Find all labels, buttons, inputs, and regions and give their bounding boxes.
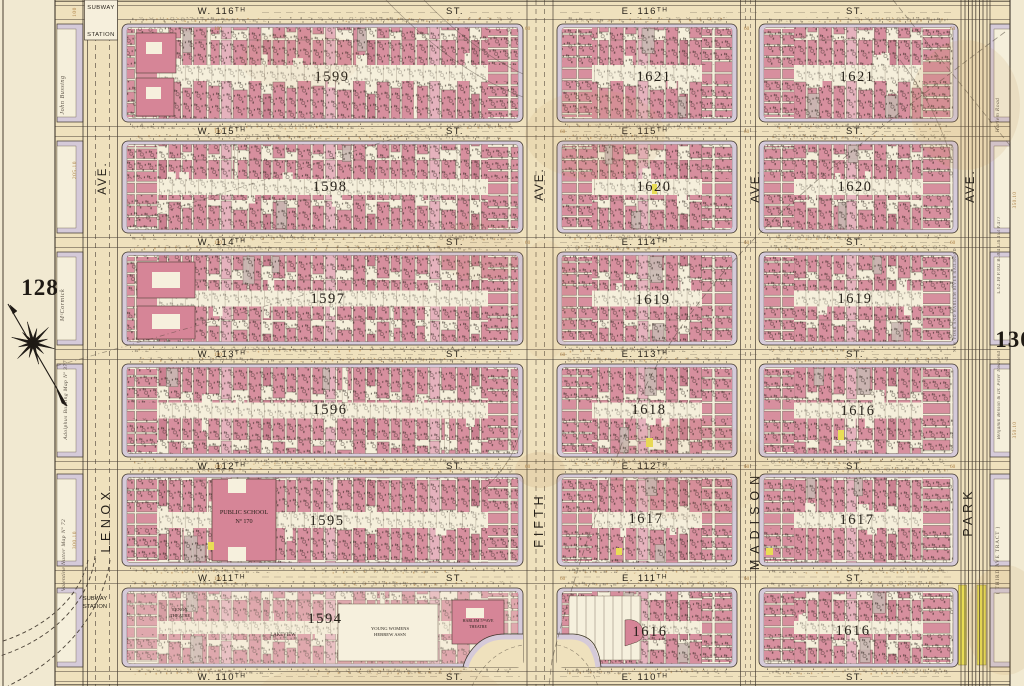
svg-text:SUBWAY: SUBWAY	[87, 5, 114, 11]
svg-text:1619: 1619	[838, 291, 873, 307]
svg-text:60: 60	[950, 464, 956, 470]
svg-text:LAKEVIEW: LAKEVIEW	[270, 633, 296, 638]
svg-text:NEW YORK AND HARLEM RIVER RAIL: NEW YORK AND HARLEM RIVER RAILROAD	[952, 248, 957, 352]
svg-text:100: 100	[214, 352, 222, 358]
svg-text:100: 100	[214, 240, 222, 246]
svg-text:LENOX: LENOX	[172, 607, 188, 612]
svg-text:1616: 1616	[836, 623, 871, 639]
svg-text:60: 60	[744, 240, 750, 246]
svg-text:HEBREW ASSN: HEBREW ASSN	[374, 632, 407, 637]
svg-text:Valentine Nutter Map Nº 72: Valentine Nutter Map Nº 72	[61, 519, 67, 591]
svg-text:60: 60	[560, 576, 566, 582]
svg-text:STATION: STATION	[83, 604, 107, 610]
svg-text:205.10: 205.10	[72, 161, 78, 179]
svg-text:ST.: ST.	[446, 6, 464, 17]
svg-text:ST.: ST.	[446, 573, 464, 584]
svg-text:350.10: 350.10	[1012, 192, 1018, 209]
svg-text:Nº 170: Nº 170	[235, 518, 252, 525]
svg-text:AVE.: AVE.	[965, 169, 977, 202]
svg-text:John Bussing: John Bussing	[59, 75, 66, 114]
svg-text:1621: 1621	[637, 69, 672, 85]
svg-text:ST.: ST.	[846, 461, 864, 472]
svg-text:100: 100	[214, 129, 222, 135]
svg-text:ST.: ST.	[846, 6, 864, 17]
svg-text:Adolphus Bussing Map Nº 377: Adolphus Bussing Map Nº 377	[63, 360, 69, 440]
svg-text:Benjamin Benson & Dr. Peter To: Benjamin Benson & Dr. Peter Townsend	[997, 350, 1002, 439]
svg-text:AVE.: AVE.	[534, 167, 546, 200]
svg-text:1620: 1620	[838, 179, 873, 195]
svg-text:100: 100	[214, 464, 222, 470]
svg-text:HARLEM 5ᵀᴴAVE: HARLEM 5ᵀᴴAVE	[463, 618, 494, 623]
svg-text:60: 60	[950, 26, 956, 32]
svg-text:ST.: ST.	[446, 349, 464, 360]
svg-text:1596: 1596	[313, 402, 348, 418]
svg-text:128: 128	[21, 275, 59, 300]
svg-text:ST.: ST.	[446, 461, 464, 472]
svg-text:SUBWAY: SUBWAY	[83, 596, 108, 602]
svg-text:60: 60	[744, 576, 750, 582]
svg-text:130: 130	[995, 327, 1024, 352]
svg-text:1598: 1598	[313, 179, 348, 195]
svg-text:ST.: ST.	[846, 237, 864, 248]
svg-text:100: 100	[72, 7, 78, 17]
svg-text:60: 60	[525, 240, 531, 246]
svg-text:AVE.: AVE.	[750, 169, 762, 202]
svg-text:MᶜCormick: MᶜCormick	[59, 289, 66, 323]
svg-text:STATION: STATION	[87, 32, 115, 38]
svg-text:1616: 1616	[633, 624, 668, 640]
svg-text:1595: 1595	[310, 513, 345, 529]
svg-text:1597: 1597	[311, 291, 346, 307]
svg-text:AVE.: AVE.	[97, 161, 109, 194]
svg-text:300.10: 300.10	[72, 531, 78, 549]
svg-text:THEATRE: THEATRE	[170, 613, 191, 618]
svg-text:1621: 1621	[840, 69, 875, 85]
svg-text:1618: 1618	[632, 402, 667, 418]
svg-text:1616: 1616	[841, 403, 876, 419]
svg-text:1620: 1620	[637, 179, 672, 195]
svg-text:L.62.10 P.102 B.304 Lib.153: L.62.10 P.102 B.304 Lib.153 P.477	[997, 216, 1002, 294]
svg-text:60: 60	[950, 240, 956, 246]
svg-text:ST.: ST.	[846, 349, 864, 360]
svg-text:60: 60	[744, 129, 750, 135]
svg-text:PUBLIC SCHOOL: PUBLIC SCHOOL	[220, 509, 269, 516]
svg-text:ST.: ST.	[846, 573, 864, 584]
svg-text:ST.: ST.	[846, 672, 864, 683]
svg-text:PARK: PARK	[961, 487, 975, 536]
svg-text:1594: 1594	[308, 611, 343, 627]
svg-text:FIFTH: FIFTH	[532, 492, 546, 547]
svg-text:ST.: ST.	[446, 126, 464, 137]
svg-text:LENOX: LENOX	[99, 488, 113, 553]
svg-text:60: 60	[525, 26, 531, 32]
svg-text:100: 100	[214, 26, 222, 32]
svg-text:60: 60	[560, 352, 566, 358]
svg-text:1619: 1619	[636, 292, 671, 308]
svg-text:ST.: ST.	[846, 126, 864, 137]
svg-text:YOUNG WOMENS: YOUNG WOMENS	[371, 626, 410, 631]
svg-text:THEATRE: THEATRE	[469, 624, 487, 629]
svg-text:100: 100	[214, 576, 222, 582]
svg-text:350.10: 350.10	[1012, 422, 1018, 439]
svg-text:60: 60	[744, 26, 750, 32]
svg-text:1617: 1617	[840, 512, 875, 528]
